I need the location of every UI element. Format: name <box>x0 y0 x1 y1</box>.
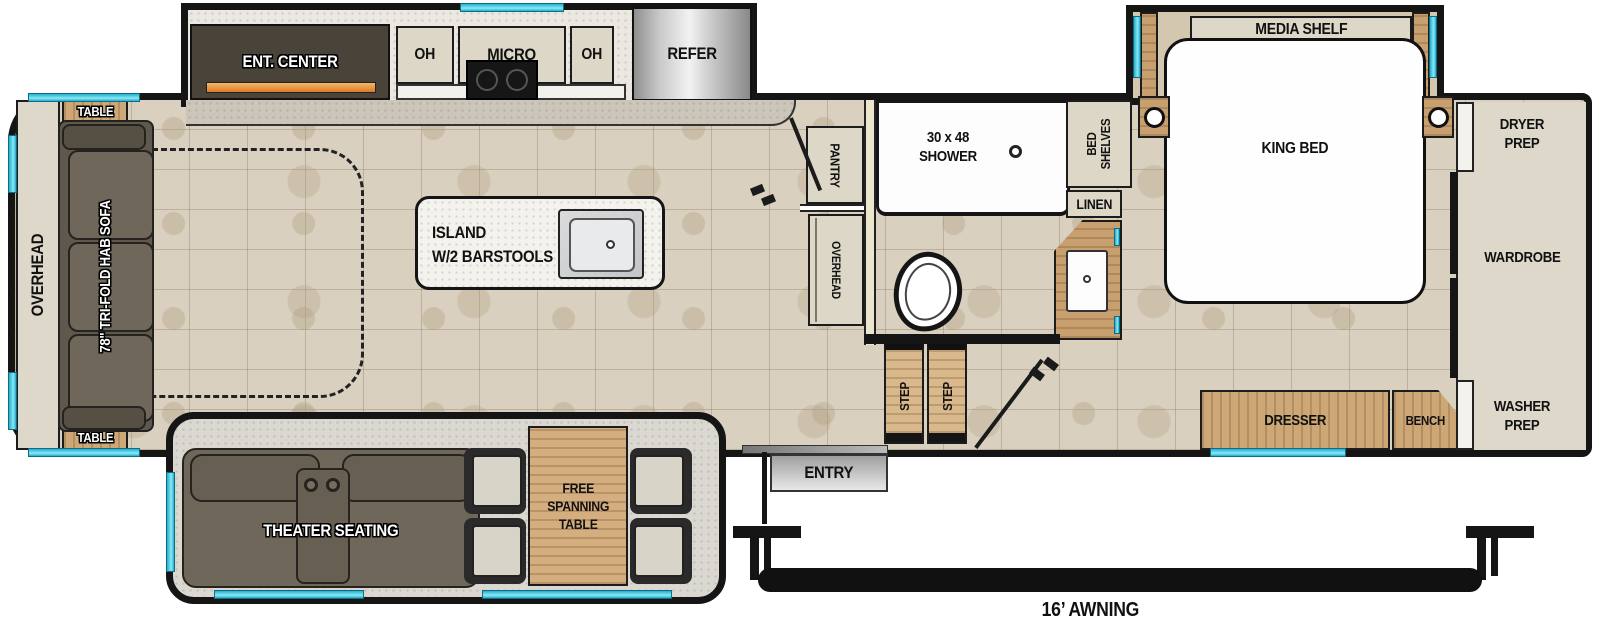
closet-sliding-door <box>1450 278 1458 378</box>
faucet-icon <box>1083 275 1091 283</box>
sofa-bed-extension-outline <box>152 148 364 398</box>
fireplace-accent <box>206 82 376 93</box>
table-label-line3: TABLE <box>547 516 609 532</box>
dresser: DRESSER <box>1200 390 1390 450</box>
chair-seat <box>472 455 522 507</box>
king-bed-label: KING BED <box>1262 140 1329 158</box>
kitchen-window <box>460 3 564 12</box>
closet-filler-bottom <box>1456 380 1474 450</box>
dining-chair <box>630 518 692 584</box>
overhead-cabinet-left-label: OH <box>415 46 436 64</box>
cupholder-icon <box>326 478 340 492</box>
dining-chair <box>464 518 526 584</box>
reading-light-icon <box>1428 107 1449 128</box>
king-bed: KING BED <box>1164 38 1426 304</box>
dryer-prep-line2: PREP <box>1466 135 1579 152</box>
table-label-wrap: FREE SPANNING TABLE <box>543 480 613 532</box>
theater-slide-window-side <box>166 472 175 572</box>
awning-label: 16’ AWNING <box>1041 599 1138 622</box>
burner-icon <box>476 69 498 91</box>
rear-left-window-upper <box>8 135 17 193</box>
kitchen-island: ISLAND W/2 BARSTOOLS <box>415 196 665 290</box>
media-shelf-label: MEDIA SHELF <box>1255 21 1347 39</box>
island-label-line2: W/2 BARSTOOLS <box>432 247 553 267</box>
awning-bracket-leg <box>750 538 759 580</box>
pantry-label: PANTRY <box>827 143 842 187</box>
vanity-light-glint <box>1114 228 1120 246</box>
front-closet: DRYER PREP WARDROBE WASHER PREP <box>1456 102 1586 450</box>
overhead-cabinet-left: OH <box>396 26 454 84</box>
washer-prep-line1: WASHER <box>1466 398 1579 415</box>
bath-wall-divider <box>864 100 876 345</box>
wardrobe-label: WARDROBE <box>1484 249 1560 266</box>
washer-prep-label-wrap: WASHER PREP <box>1458 398 1586 434</box>
step-right: STEP <box>927 344 967 444</box>
theater-label-wrap: THEATER SEATING <box>184 516 478 546</box>
awning-roller <box>758 568 1482 592</box>
refrigerator: REFER <box>632 7 752 101</box>
bedroom-window-right <box>1429 16 1437 78</box>
bench-label: BENCH <box>1405 413 1444 428</box>
dryer-prep-line1: DRYER <box>1466 116 1579 133</box>
bed-shelves-line2: SHELVES <box>1098 119 1113 170</box>
theater-seating: THEATER SEATING <box>182 448 480 588</box>
burner-icon <box>506 69 528 91</box>
shower-drain-icon <box>1009 145 1022 158</box>
island-label-line1: ISLAND <box>432 223 553 243</box>
pantry: PANTRY <box>806 126 864 204</box>
dining-chair <box>464 448 526 514</box>
step-left: STEP <box>884 344 924 444</box>
washer-prep-line2: PREP <box>1466 417 1579 434</box>
king-bed-label-wrap: KING BED <box>1167 129 1423 169</box>
bed-shelves-line1: BED <box>1084 132 1099 155</box>
slide-trim-left <box>1140 12 1158 100</box>
galley-counter <box>186 100 796 126</box>
theater-label: THEATER SEATING <box>263 521 398 541</box>
theater-slide-window-left <box>214 590 364 599</box>
dining-chair <box>630 448 692 514</box>
theater-slide-window-right <box>482 590 672 599</box>
rear-overhead-label: OVERHEAD <box>28 234 48 317</box>
hall-overhead-cabinet: OVERHEAD <box>808 214 864 326</box>
linen-label: LINEN <box>1076 196 1112 212</box>
bed-shelves-label: BED SHELVES <box>1085 119 1113 170</box>
entertainment-center-label: ENT. CENTER <box>242 52 337 72</box>
nightstand-left <box>1138 96 1170 138</box>
rear-overhead-cabinet: OVERHEAD <box>16 100 60 450</box>
floorplan-canvas: ENT. CENTER OH MICRO OH REFER MEDIA SHEL… <box>0 0 1600 623</box>
sofa-label: 78" TRI-FOLD HAB SOFA <box>98 200 115 353</box>
chair-seat <box>634 525 684 577</box>
nightstand-right <box>1422 96 1454 138</box>
bath-bottom-wall <box>864 334 1060 344</box>
hall-overhead-label: OVERHEAD <box>829 241 843 299</box>
reading-light-icon <box>1144 107 1165 128</box>
awning-bracket-leg <box>1491 538 1498 576</box>
shower-label-line1: 30 x 48 <box>900 129 997 146</box>
step-tread <box>886 433 922 442</box>
rear-bottom-window <box>28 448 140 457</box>
bedroom-bottom-window <box>1210 448 1346 457</box>
wardrobe-label-wrap: WARDROBE <box>1458 242 1586 272</box>
overhead-cabinet-right-label: OH <box>582 46 603 64</box>
entry-step-well: ENTRY <box>770 454 888 492</box>
closet-filler-top <box>1456 102 1474 172</box>
shower-label-line2: SHOWER <box>900 148 997 165</box>
rear-top-window <box>28 93 140 102</box>
free-spanning-table: FREE SPANNING TABLE <box>528 426 628 586</box>
trifold-sofa: 78" TRI-FOLD HAB SOFA <box>58 120 154 432</box>
step-tread <box>929 433 965 442</box>
entry-door-post <box>762 452 767 524</box>
sofa-label-wrap: 78" TRI-FOLD HAB SOFA <box>60 122 152 430</box>
island-label-wrap: ISLAND W/2 BARSTOOLS <box>432 223 569 267</box>
island-sink-basin <box>569 218 635 272</box>
linen-closet: LINEN <box>1066 190 1122 218</box>
overhead-cabinet-right: OH <box>570 26 614 84</box>
island-sink <box>558 209 644 279</box>
shower-label-wrap: 30 x 48 SHOWER <box>893 129 1003 165</box>
table-label-line1: FREE <box>547 480 609 496</box>
rear-left-window-lower <box>8 372 17 430</box>
dryer-prep-label-wrap: DRYER PREP <box>1458 116 1586 152</box>
bed-shelves: BED SHELVES <box>1066 100 1132 188</box>
awning-bracket-bar-right <box>1466 526 1534 538</box>
theater-seat-back <box>342 454 472 502</box>
entry-label: ENTRY <box>805 463 854 483</box>
step-right-label: STEP <box>939 382 954 411</box>
step-left-label: STEP <box>896 382 911 411</box>
dresser-label: DRESSER <box>1264 412 1326 429</box>
cupholder-icon <box>304 478 318 492</box>
toilet-seat-line <box>900 259 955 324</box>
bedroom-window-left <box>1133 16 1141 78</box>
closet-sliding-door <box>1450 172 1458 274</box>
refrigerator-label: REFER <box>667 44 716 64</box>
chair-seat <box>634 455 684 507</box>
chair-seat <box>472 525 522 577</box>
awning-label-wrap: 16’ AWNING <box>890 598 1290 622</box>
cabinet-shelf-line <box>815 218 817 322</box>
range-cooktop <box>466 60 538 100</box>
vanity-light-glint <box>1114 316 1120 334</box>
table-label-line2: SPANNING <box>547 498 609 514</box>
shower: 30 x 48 SHOWER <box>876 100 1070 216</box>
entertainment-center: ENT. CENTER <box>190 24 390 100</box>
faucet-icon <box>606 240 615 249</box>
wall-stub <box>800 204 864 212</box>
rear-table-top-label: TABLE <box>77 104 113 119</box>
awning-bracket-bar-left <box>733 526 801 538</box>
